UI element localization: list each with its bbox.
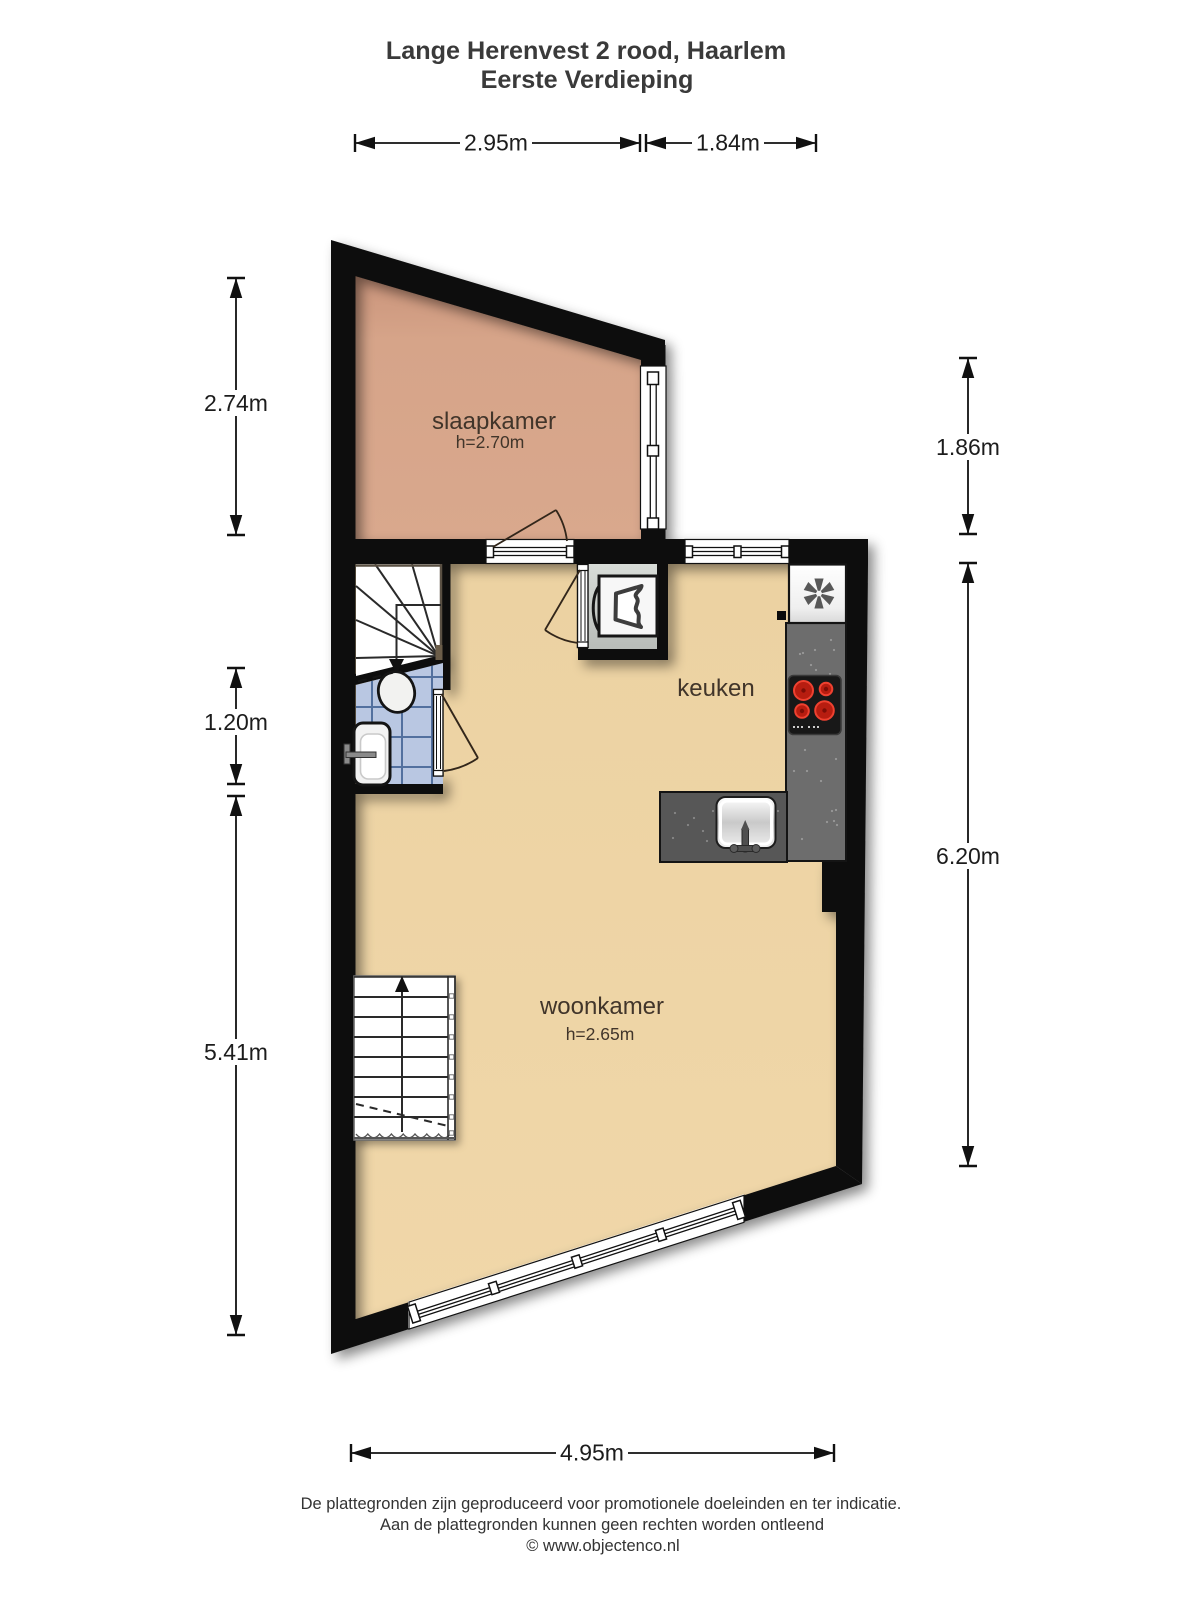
svg-text:Aan de plattegronden kunnen ge: Aan de plattegronden kunnen geen rechten… <box>380 1516 824 1534</box>
svg-text:h=2.65m: h=2.65m <box>566 1024 635 1044</box>
svg-text:6.20m: 6.20m <box>936 843 1000 869</box>
svg-text:1.20m: 1.20m <box>204 709 268 735</box>
svg-text:keuken: keuken <box>677 675 754 702</box>
svg-text:2.74m: 2.74m <box>204 390 268 416</box>
svg-text:Lange Herenvest 2 rood, Haarle: Lange Herenvest 2 rood, Haarlem <box>386 37 786 65</box>
svg-text:Eerste Verdieping: Eerste Verdieping <box>481 66 694 94</box>
svg-text:slaapkamer: slaapkamer <box>432 408 556 435</box>
svg-text:De plattegronden zijn geproduc: De plattegronden zijn geproduceerd voor … <box>301 1495 902 1513</box>
svg-text:1.84m: 1.84m <box>696 130 760 156</box>
svg-text:h=2.70m: h=2.70m <box>456 432 525 452</box>
svg-text:2.95m: 2.95m <box>464 130 528 156</box>
svg-text:5.41m: 5.41m <box>204 1039 268 1065</box>
svg-text:4.95m: 4.95m <box>560 1440 624 1466</box>
svg-text:woonkamer: woonkamer <box>539 993 664 1020</box>
svg-text:© www.objectenco.nl: © www.objectenco.nl <box>526 1537 679 1555</box>
svg-text:1.86m: 1.86m <box>936 434 1000 460</box>
